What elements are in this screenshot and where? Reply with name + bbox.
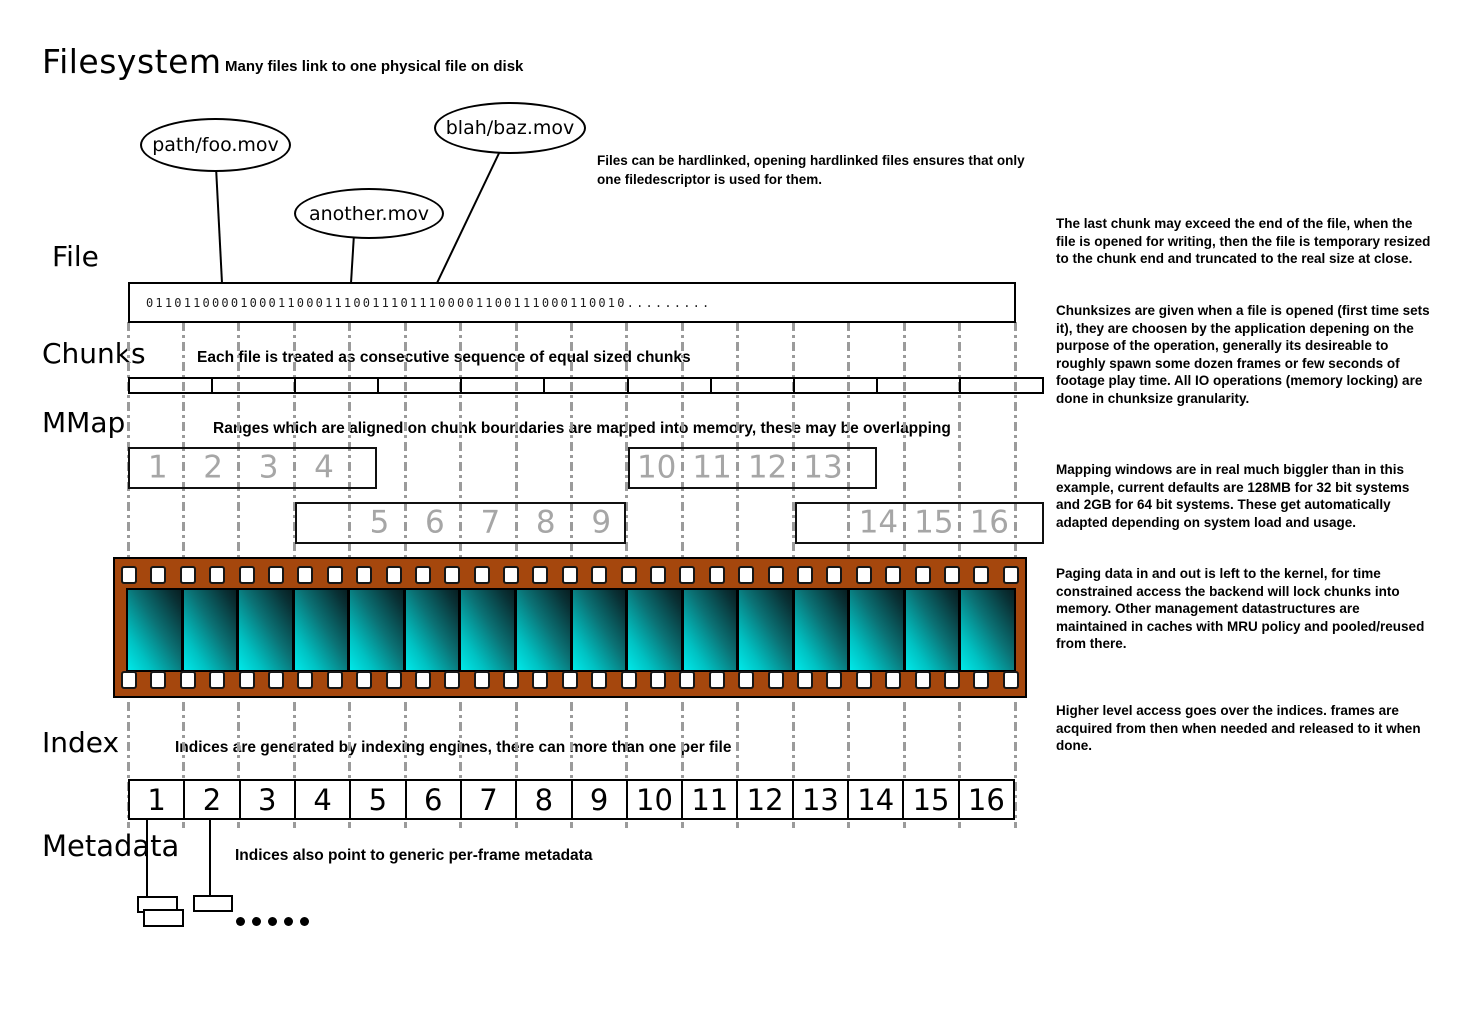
page-title: Filesystem: [42, 42, 222, 81]
mmap-window-3: 56789: [295, 502, 626, 544]
metadata-caption: Indices also point to generic per-frame …: [235, 847, 592, 865]
chunk-segment: [379, 379, 462, 392]
sprocket-hole: [532, 671, 548, 689]
film-frame: [906, 590, 959, 670]
sprocket-hole: [973, 566, 989, 584]
link-line-foo: [216, 167, 222, 283]
mmap-frame-number: 6: [425, 504, 445, 540]
sprocket-hole: [444, 671, 460, 689]
index-cell: 6: [407, 781, 462, 818]
sprocket-hole: [562, 671, 578, 689]
mmap-frame-number: 15: [914, 504, 953, 540]
mmap-frame-number: 12: [748, 449, 787, 485]
chunk-segment: [961, 379, 1042, 392]
file-bar: 0110110000100011000111001110111000011001…: [128, 282, 1016, 323]
sprocket-hole: [209, 671, 225, 689]
index-cell: 12: [738, 781, 793, 818]
sprocket-hole: [885, 671, 901, 689]
sprocket-hole: [532, 566, 548, 584]
sprocket-hole: [239, 671, 255, 689]
index-cell: 16: [960, 781, 1013, 818]
mmap-frame-number: 16: [970, 504, 1009, 540]
sprocket-hole: [209, 566, 225, 584]
film-frame: [739, 590, 792, 670]
mmap-frame-number: 1: [148, 449, 168, 485]
sprocket-hole: [709, 566, 725, 584]
sprocket-hole: [797, 566, 813, 584]
index-cell: 5: [351, 781, 406, 818]
mmap-frame-number: 8: [536, 504, 556, 540]
sprocket-hole: [239, 566, 255, 584]
sprocket-hole: [738, 566, 754, 584]
sprocket-hole: [826, 671, 842, 689]
sprocket-hole: [327, 566, 343, 584]
index-cell: 13: [794, 781, 849, 818]
sprocket-hole: [679, 566, 695, 584]
metadata-record: [193, 895, 233, 912]
file-link-label: another.mov: [309, 203, 429, 225]
sprocket-hole: [944, 566, 960, 584]
sprocket-hole: [973, 671, 989, 689]
sprocket-hole: [150, 566, 166, 584]
sprocket-hole: [180, 671, 196, 689]
sprocket-hole: [415, 671, 431, 689]
hardlink-note: Files can be hardlinked, opening hardlin…: [597, 152, 1037, 190]
sprocket-hole: [650, 566, 666, 584]
film-frame: [406, 590, 459, 670]
sprocket-hole: [650, 671, 666, 689]
index-cell: 2: [185, 781, 240, 818]
sprocket-hole: [797, 671, 813, 689]
file-link-ellipse-another: another.mov: [294, 188, 444, 239]
film-frame: [350, 590, 403, 670]
film-frame: [517, 590, 570, 670]
page-subtitle: Many files link to one physical file on …: [225, 58, 523, 75]
sprocket-hole: [768, 671, 784, 689]
filmstrip: [113, 557, 1027, 698]
note-last-chunk: The last chunk may exceed the end of the…: [1056, 215, 1431, 268]
sprocket-hole: [591, 566, 607, 584]
sprocket-hole: [503, 671, 519, 689]
metadata-dot: [284, 917, 293, 926]
metadata-record: [143, 909, 184, 927]
film-frames: [126, 588, 1016, 672]
chunk-segment: [296, 379, 379, 392]
sprocket-row-bottom: [121, 671, 1019, 689]
sprocket-hole: [1003, 671, 1019, 689]
metadata-ellipsis-dots: [236, 917, 309, 926]
sprocket-hole: [356, 671, 372, 689]
sprocket-hole: [327, 671, 343, 689]
mmap-frame-number: 13: [803, 449, 842, 485]
chunks-bar: [128, 377, 1044, 394]
chunk-segment: [130, 379, 213, 392]
sprocket-hole: [768, 566, 784, 584]
file-binary-content: 0110110000100011000111001110111000011001…: [146, 296, 711, 310]
sprocket-hole: [386, 671, 402, 689]
chunk-segment: [545, 379, 628, 392]
mmap-frame-number: 14: [859, 504, 898, 540]
index-cell: 10: [628, 781, 683, 818]
sprocket-hole: [562, 566, 578, 584]
mmap-frame-number: 10: [637, 449, 676, 485]
mmap-window-2: 10111213: [628, 447, 877, 489]
sprocket-hole: [885, 566, 901, 584]
sprocket-hole: [268, 671, 284, 689]
film-frame: [961, 590, 1014, 670]
film-frame: [461, 590, 514, 670]
sprocket-row-top: [121, 566, 1019, 584]
index-cell: 9: [573, 781, 628, 818]
sprocket-hole: [474, 566, 490, 584]
chunk-segment: [795, 379, 878, 392]
sprocket-hole: [621, 566, 637, 584]
index-cell: 8: [517, 781, 572, 818]
sprocket-hole: [1003, 566, 1019, 584]
sprocket-hole: [150, 671, 166, 689]
file-link-label: path/foo.mov: [152, 134, 279, 156]
film-frame: [684, 590, 737, 670]
sprocket-hole: [621, 671, 637, 689]
chunk-segment: [712, 379, 795, 392]
file-link-label: blah/baz.mov: [446, 117, 575, 139]
film-frame: [795, 590, 848, 670]
index-cell: 11: [683, 781, 738, 818]
sprocket-hole: [180, 566, 196, 584]
sprocket-hole: [738, 671, 754, 689]
metadata-dot: [236, 917, 245, 926]
metadata-dot: [268, 917, 277, 926]
mmap-frame-number: 4: [314, 449, 334, 485]
mmap-frame-number: 9: [591, 504, 611, 540]
mmap-frame-number: 11: [692, 449, 731, 485]
sprocket-hole: [709, 671, 725, 689]
sprocket-hole: [591, 671, 607, 689]
chunk-segment: [213, 379, 296, 392]
sprocket-hole: [121, 671, 137, 689]
index-cell: 4: [296, 781, 351, 818]
chunk-segment: [629, 379, 712, 392]
film-frame: [184, 590, 237, 670]
link-line-another: [351, 234, 354, 283]
mmap-window-1: 1234: [128, 447, 377, 489]
sprocket-hole: [415, 566, 431, 584]
mmap-frame-number: 5: [370, 504, 390, 540]
section-label-metadata: Metadata: [42, 829, 179, 863]
sprocket-hole: [297, 671, 313, 689]
index-cell: 3: [241, 781, 296, 818]
sprocket-hole: [474, 671, 490, 689]
index-row: 12345678910111213141516: [128, 779, 1015, 820]
metadata-dot: [300, 917, 309, 926]
film-frame: [295, 590, 348, 670]
sprocket-hole: [444, 566, 460, 584]
sprocket-hole: [121, 566, 137, 584]
mmap-window-4: 141516: [795, 502, 1044, 544]
sprocket-hole: [297, 566, 313, 584]
sprocket-hole: [826, 566, 842, 584]
sprocket-hole: [503, 566, 519, 584]
mmap-frame-number: 7: [480, 504, 500, 540]
sprocket-hole: [944, 671, 960, 689]
section-label-file: File: [52, 240, 99, 273]
sprocket-hole: [856, 671, 872, 689]
chunk-segment: [878, 379, 961, 392]
index-cell: 15: [904, 781, 959, 818]
index-cell: 1: [130, 781, 185, 818]
film-frame: [128, 590, 181, 670]
file-link-ellipse-foo: path/foo.mov: [140, 118, 291, 172]
sprocket-hole: [356, 566, 372, 584]
file-link-ellipse-baz: blah/baz.mov: [434, 102, 586, 154]
filesystem-diagram: Filesystem Many files link to one physic…: [0, 0, 1462, 1033]
film-frame: [850, 590, 903, 670]
film-frame: [239, 590, 292, 670]
mmap-frame-number: 3: [259, 449, 279, 485]
film-frame: [573, 590, 626, 670]
chunk-segment: [462, 379, 545, 392]
index-cell: 14: [849, 781, 904, 818]
mmap-frame-number: 2: [203, 449, 223, 485]
sprocket-hole: [268, 566, 284, 584]
link-line-baz: [437, 149, 501, 283]
metadata-dot: [252, 917, 261, 926]
index-cell: 7: [462, 781, 517, 818]
sprocket-hole: [915, 671, 931, 689]
sprocket-hole: [386, 566, 402, 584]
film-frame: [628, 590, 681, 670]
sprocket-hole: [679, 671, 695, 689]
sprocket-hole: [915, 566, 931, 584]
sprocket-hole: [856, 566, 872, 584]
